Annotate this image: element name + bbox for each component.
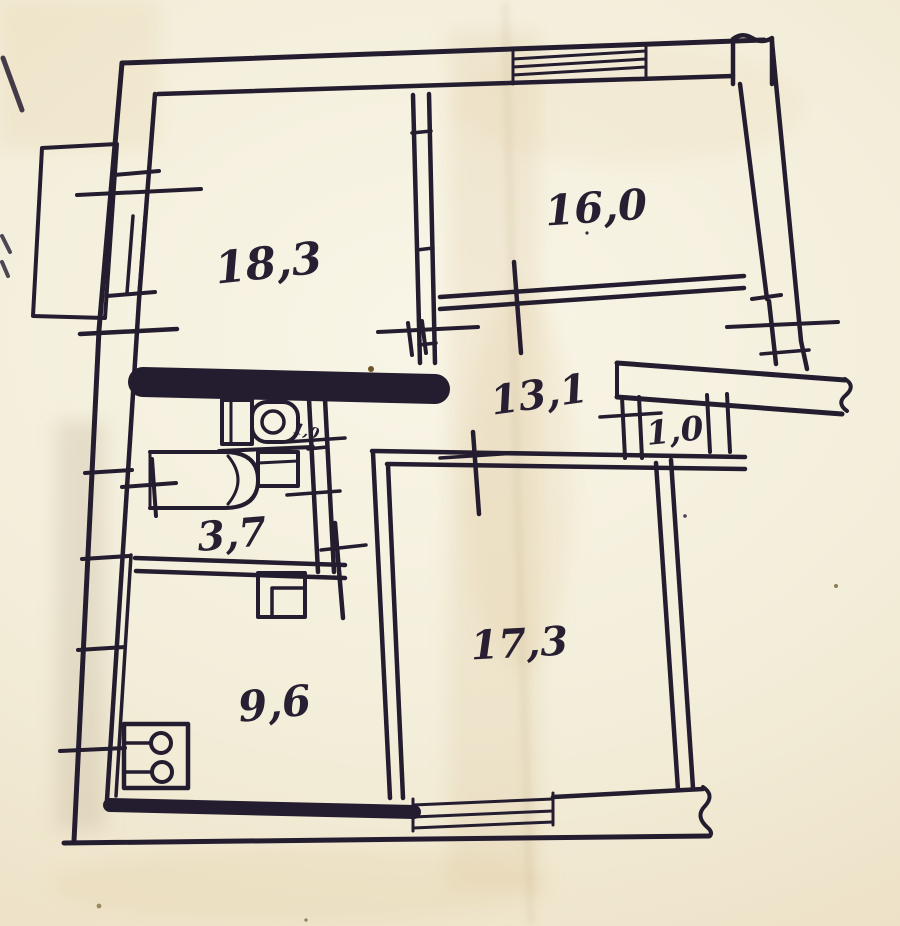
sink-inner-line: [258, 461, 298, 463]
bottom-right-upper-wall: [553, 789, 703, 797]
bathtub-icon: [122, 452, 258, 516]
room17-top-wall-upper: [372, 451, 745, 457]
hall-top-band-upper: [617, 363, 845, 380]
sink-icon: [258, 452, 298, 486]
room17-top-wall-lower: [387, 464, 745, 469]
balcony: [33, 144, 201, 318]
stove-connector-lines: [124, 743, 152, 772]
label-room-17-3: 17,3: [469, 618, 569, 670]
ink-speck-5: [304, 918, 307, 921]
label-kitchen-9-6: 9,6: [236, 675, 314, 731]
label-bathroom-3-7: 3,7: [195, 508, 269, 561]
left-window-bottom-rung: [107, 292, 155, 296]
ink-speck-1: [368, 366, 374, 372]
bottom-inner-wall-band: [110, 805, 414, 812]
bathtub-outline: [150, 452, 258, 508]
left-wall-jog-tick: [80, 329, 177, 334]
room18-bottom-wall-band: [143, 382, 435, 389]
kitchen-door-tick: [321, 545, 366, 550]
label-room-16-0: 16,0: [543, 180, 648, 236]
bathroom-right-wall-2: [325, 399, 334, 572]
vent-shaft-inner: [272, 588, 303, 615]
room17-left-wall-1: [373, 453, 390, 798]
label-room-18-3: 18,3: [213, 233, 325, 295]
vent-shaft-icon: [258, 573, 305, 617]
left-window-top-rung: [114, 171, 159, 175]
ink-speck-2: [585, 231, 588, 234]
scanned-floorplan-page: 18,3 16,0 13,1 1,0 3,7 1,0 9,6 17,3: [0, 0, 900, 926]
hall-top-band-squiggle: [841, 379, 851, 411]
ink-speck-3: [97, 904, 102, 909]
bathroom-fixtures: [122, 400, 313, 516]
vent-shaft-outline: [258, 573, 305, 617]
kitchen-door-leaf: [335, 523, 343, 618]
stove-icon: [124, 724, 188, 788]
wall-between-18-16-left: [413, 95, 420, 363]
bottom-outer-wall: [64, 836, 709, 843]
ink-speck-6: [683, 514, 687, 518]
toilet-tank: [222, 400, 252, 444]
edge-dashes: [2, 236, 10, 276]
bathtub-inner-arc: [228, 456, 238, 504]
topleft-stain: [0, 0, 160, 150]
floorplan-drawing: 18,3 16,0 13,1 1,0 3,7 1,0 9,6 17,3: [0, 0, 900, 926]
wall-between-18-16-right: [429, 94, 435, 363]
closet-left-wall: [622, 397, 642, 458]
sink-basin: [258, 452, 298, 486]
bathroom-bottom-wall-1: [135, 558, 345, 565]
stove-burner-2: [152, 762, 172, 782]
toilet-bowl-circle: [262, 411, 284, 433]
ink-speck-4: [834, 584, 838, 588]
label-closet-1-0: 1,0: [644, 408, 705, 453]
right-wall-cross: [752, 295, 781, 299]
left-edge-shade: [56, 420, 106, 830]
room17-left-wall-2: [388, 465, 403, 798]
bottom-stain: [50, 847, 550, 923]
stove-burner-1: [151, 733, 171, 753]
right-wall-long-tick: [727, 322, 838, 327]
bathroom-bottom-wall-2: [136, 571, 345, 578]
bottom-right-break-squiggle: [700, 787, 711, 836]
balcony-door-tick: [77, 189, 201, 195]
